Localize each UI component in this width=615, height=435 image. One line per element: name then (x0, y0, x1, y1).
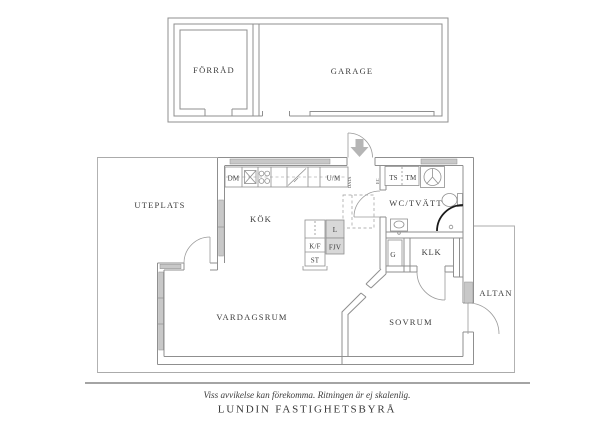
klk-label: KLK (422, 247, 442, 257)
sovrum-door-swing (417, 272, 445, 300)
oven-micro-label: U/M (327, 175, 341, 183)
uteplats-label: UTEPLATS (134, 200, 185, 210)
fjv-label: FJV (329, 244, 341, 252)
sovrum-label: SOVRUM (389, 317, 433, 327)
hall-dashed-area (343, 195, 374, 228)
data-cabinet-label: DATA (347, 176, 352, 188)
vardagsrum-label: VARDAGSRUM (216, 312, 287, 322)
sovrum-east-window (465, 282, 473, 303)
altan-label: ALTAN (479, 288, 512, 298)
uteplats-door-swing (184, 237, 210, 263)
garage-door-gap (263, 114, 290, 118)
floor-drain-icon (449, 225, 453, 229)
wc-north-window (421, 159, 457, 164)
garage-vehicle-door (310, 112, 434, 117)
jog-wall-window (160, 264, 181, 269)
disclaimer-text: Viss avvikelse kan förekomma. Ritningen … (204, 390, 411, 400)
washing-machine-label: TM (406, 174, 417, 182)
wc-tvatt-label: WC/TVÄTT (389, 198, 443, 208)
kitchen-north-window (230, 159, 330, 164)
dishwasher-label: DM (228, 175, 240, 183)
livingroom-west-window (159, 272, 164, 350)
altan-door-swing (468, 303, 499, 334)
entrance-arrow-icon (351, 139, 369, 157)
fridge-freezer-label: K/F (309, 243, 321, 251)
shower-screen-arc (437, 205, 463, 231)
forrad-label: FÖRRÅD (193, 65, 235, 75)
el-central-label: EC (375, 178, 380, 184)
kitchen-west-window (219, 200, 224, 256)
kok-label: KÖK (250, 214, 272, 224)
drying-cabinet-label: TS (389, 174, 398, 182)
floor-plan-page: FÖRRÅD GARAGE (0, 0, 615, 435)
window-ticks (158, 227, 225, 324)
water-heater-icon (421, 167, 445, 188)
garage-label: GARAGE (331, 66, 374, 76)
brand-text: LUNDIN FASTIGHETSBYRÅ (218, 404, 396, 416)
floor-plan-drawing: FÖRRÅD GARAGE (0, 0, 615, 435)
st-label: ST (311, 257, 320, 265)
l-label: L (333, 226, 337, 234)
wardrobe-label: G (390, 250, 396, 259)
